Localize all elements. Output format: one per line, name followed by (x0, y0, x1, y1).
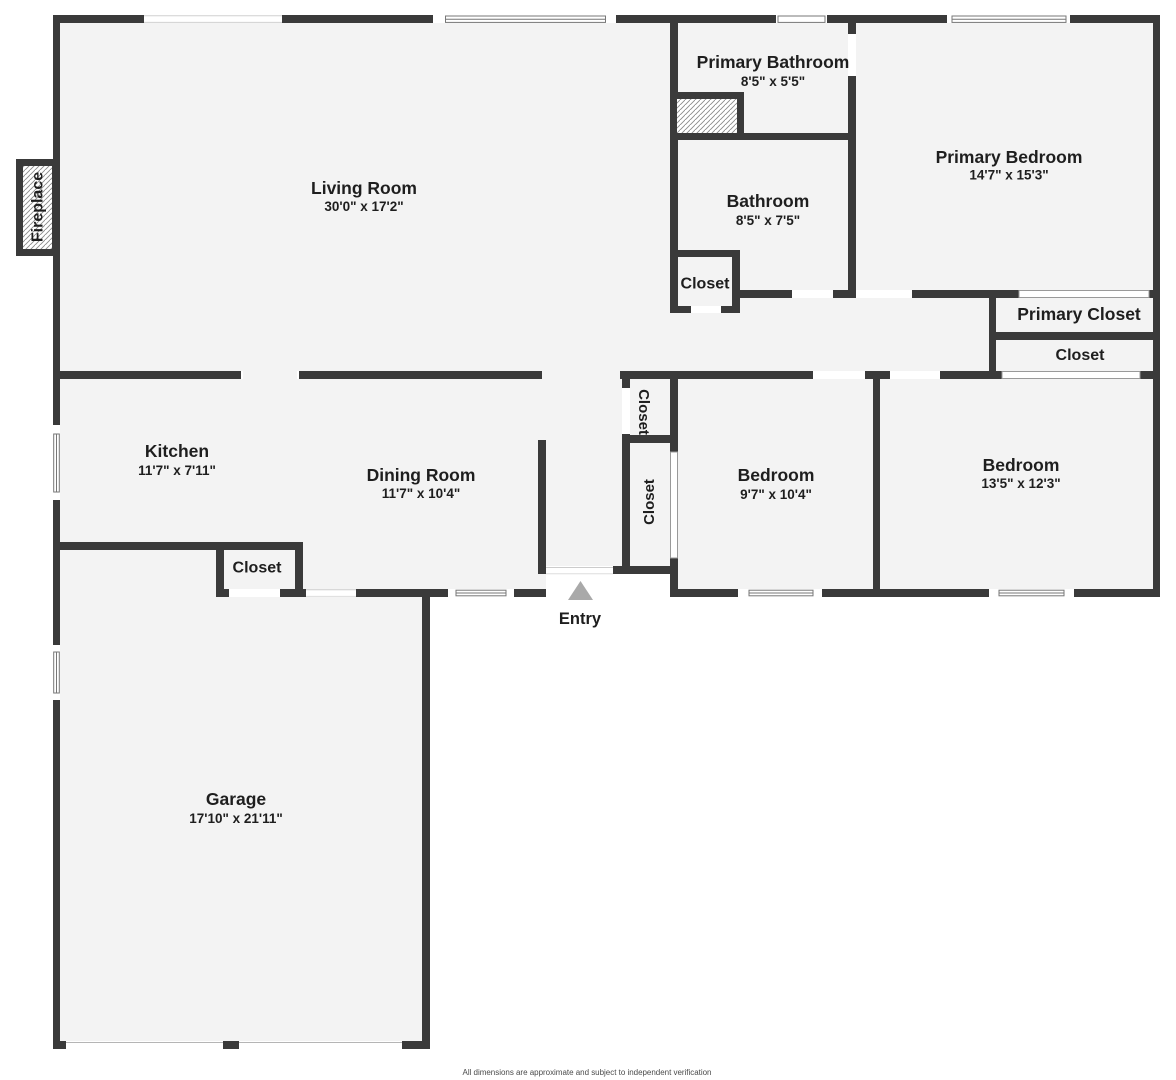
svg-text:Garage: Garage (206, 789, 267, 809)
svg-text:Closet: Closet (641, 479, 658, 525)
svg-text:Fireplace: Fireplace (30, 172, 47, 242)
svg-text:13'5" x 12'3": 13'5" x 12'3" (981, 476, 1060, 491)
svg-text:Primary Bedroom: Primary Bedroom (936, 147, 1083, 167)
svg-text:Kitchen: Kitchen (145, 441, 209, 461)
svg-text:Entry: Entry (559, 610, 602, 628)
svg-text:Closet: Closet (1056, 347, 1106, 364)
svg-text:Living Room: Living Room (311, 178, 417, 198)
svg-text:11'7" x 10'4": 11'7" x 10'4" (382, 486, 461, 501)
svg-text:11'7" x 7'11": 11'7" x 7'11" (138, 463, 216, 478)
svg-text:Bathroom: Bathroom (727, 191, 810, 211)
svg-text:8'5" x 7'5": 8'5" x 7'5" (736, 213, 800, 228)
svg-text:Bedroom: Bedroom (738, 465, 815, 485)
svg-text:Primary Closet: Primary Closet (1017, 304, 1141, 324)
svg-text:8'5" x 5'5": 8'5" x 5'5" (741, 74, 805, 89)
svg-text:Closet: Closet (635, 389, 652, 435)
svg-text:Bedroom: Bedroom (983, 455, 1060, 475)
svg-text:Closet: Closet (233, 560, 283, 577)
svg-text:17'10" x 21'11": 17'10" x 21'11" (189, 811, 283, 826)
svg-text:9'7" x 10'4": 9'7" x 10'4" (740, 487, 812, 502)
svg-text:Dining Room: Dining Room (367, 465, 476, 485)
svg-text:14'7" x 15'3": 14'7" x 15'3" (969, 168, 1048, 183)
svg-text:30'0" x 17'2": 30'0" x 17'2" (324, 199, 403, 214)
svg-text:All dimensions are approximate: All dimensions are approximate and subje… (463, 1068, 712, 1077)
svg-text:Closet: Closet (681, 276, 731, 293)
svg-text:Primary Bathroom: Primary Bathroom (697, 52, 850, 72)
